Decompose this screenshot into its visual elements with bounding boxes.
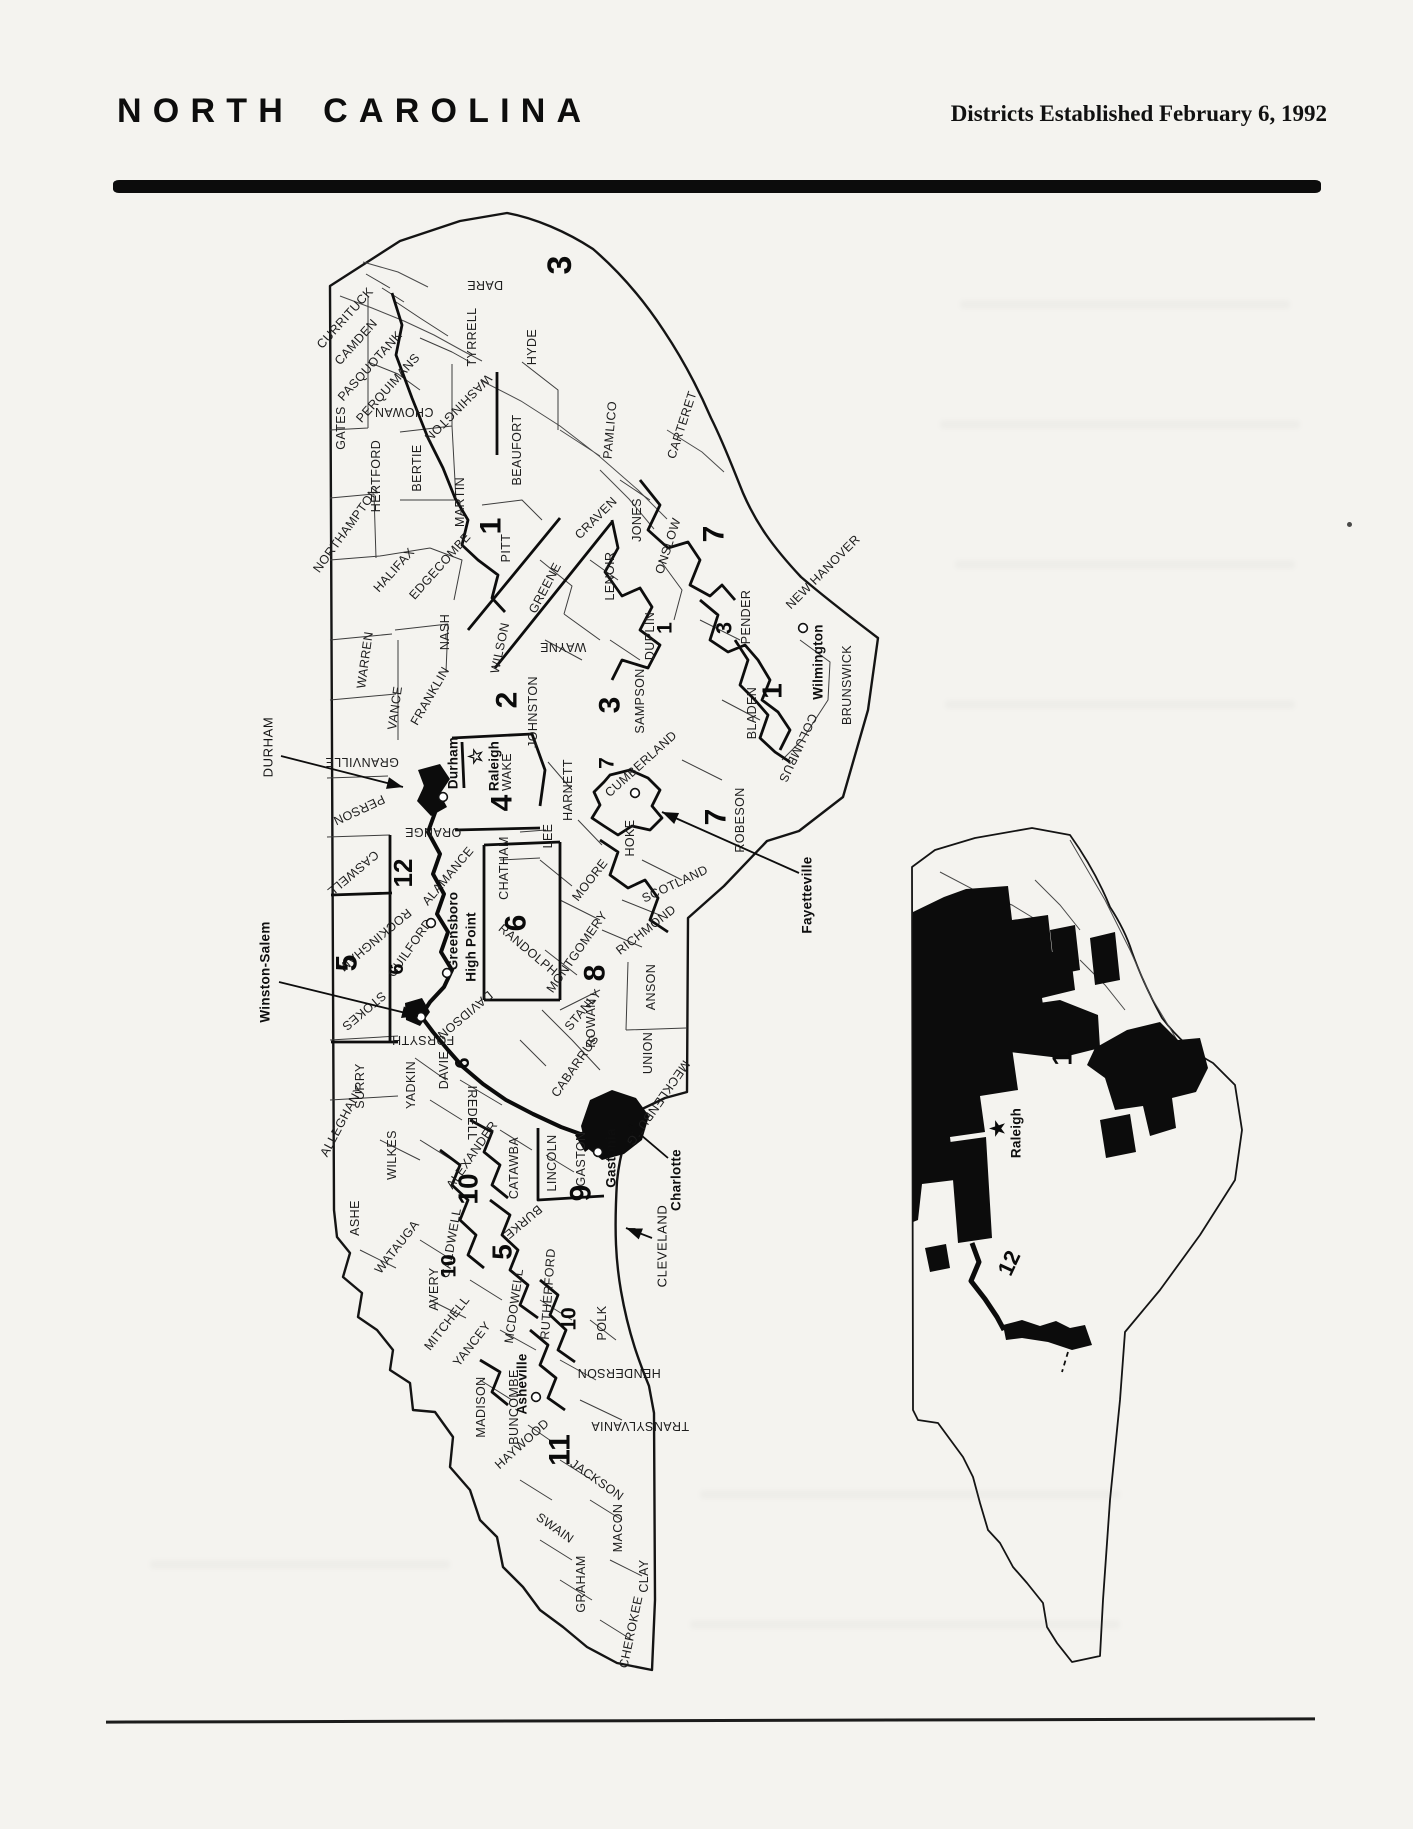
- inset-district-number-label: 1: [1047, 1050, 1078, 1066]
- county-label: CHEROKEE: [617, 1595, 646, 1670]
- callout-label: DURHAM: [261, 717, 276, 778]
- district-number-label: 12: [388, 859, 418, 888]
- county-label: MARTIN: [453, 477, 467, 527]
- county-label: DAVIE: [437, 1051, 451, 1090]
- county-label: GATES: [334, 406, 348, 449]
- county-label: ROBESON: [733, 787, 747, 852]
- county-label: LENOIR: [603, 552, 617, 601]
- county-label: POLK: [595, 1305, 609, 1340]
- county-label: ANSON: [644, 964, 658, 1010]
- county-label: SAMPSON: [633, 668, 647, 733]
- district-number-label: 4: [486, 794, 519, 811]
- county-label: FORSYTH: [392, 1033, 455, 1047]
- callout-label: Charlotte: [669, 1149, 684, 1211]
- county-label: UNION: [641, 1032, 655, 1074]
- county-label: CHATHAM: [497, 836, 511, 900]
- district-number-label: 7: [700, 809, 733, 826]
- county-label: COLUMBUS: [776, 711, 820, 784]
- county-label: MACON: [611, 1504, 625, 1553]
- county-label: GRANVILLE: [325, 755, 399, 769]
- bleed-artifact: [960, 300, 1290, 309]
- callout-label: Winston-Salem: [258, 921, 273, 1022]
- sounds-coastlines: [340, 262, 724, 529]
- inset-map-geometry: [912, 828, 1242, 1662]
- county-label: GASTON: [574, 1132, 588, 1187]
- district-number-label: 5: [487, 1244, 518, 1260]
- district-number-label: 9: [565, 1185, 598, 1202]
- district-number-label: 6: [386, 963, 408, 974]
- inset-district-1-area: [913, 886, 1208, 1272]
- county-label: WAKE: [500, 753, 514, 791]
- county-label: PASQUOTANK: [335, 328, 405, 404]
- district-number-label: 3: [541, 256, 579, 275]
- city-circle-marker: [443, 969, 452, 978]
- district-number-label: 7: [698, 526, 731, 543]
- county-label: LEE: [541, 824, 555, 849]
- city-label: Wilmington: [811, 624, 826, 699]
- city-circle-marker: [439, 793, 448, 802]
- county-label: LINCOLN: [545, 1135, 559, 1192]
- county-label: MADISON: [474, 1376, 488, 1437]
- county-label: STOKES: [339, 989, 389, 1034]
- county-label: NORTHAMPTON: [310, 485, 381, 576]
- county-label: CURRITUCK: [314, 284, 376, 351]
- district-number-label: 10: [558, 1307, 581, 1330]
- county-label: HOKE: [623, 819, 637, 856]
- city-label: Raleigh: [487, 741, 502, 791]
- county-label: TRANSYLVANIA: [591, 1419, 689, 1433]
- county-label: BRUNSWICK: [840, 645, 854, 725]
- county-label: WATAUGA: [372, 1217, 422, 1276]
- county-label: RICHMOND: [613, 902, 678, 957]
- county-label: BEAUFORT: [510, 414, 524, 485]
- county-label: VANCE: [385, 685, 405, 731]
- city-label: High Point: [464, 912, 479, 982]
- county-label: PENDER: [739, 590, 753, 645]
- county-label: CLAY: [637, 1559, 651, 1593]
- callout-arrow-head-icon: [626, 1228, 643, 1239]
- district-number-label: 6: [452, 1057, 474, 1068]
- inset-city-star-icon: ★: [987, 1116, 1010, 1141]
- county-label: ASHE: [348, 1200, 362, 1236]
- bleed-artifact: [955, 560, 1295, 569]
- inset-district-12-blobs: [1003, 1320, 1092, 1350]
- district-number-label: 8: [579, 965, 612, 982]
- county-label: NASH: [438, 614, 452, 650]
- callout-label: Fayetteville: [800, 856, 815, 933]
- county-label: BERTIE: [410, 444, 424, 491]
- district-number-label: 1: [654, 622, 677, 634]
- county-label: SCOTLAND: [640, 863, 711, 906]
- county-label: WILKES: [385, 1130, 399, 1180]
- county-label: ALLEGHANY: [317, 1083, 366, 1159]
- city-label: Durham: [446, 737, 461, 789]
- district-number-label: 3: [712, 622, 737, 634]
- county-label: CHOWAN: [375, 405, 434, 419]
- county-label: TYRRELL: [465, 307, 479, 366]
- district-number-label: 1: [475, 518, 508, 535]
- county-label: EDGECOMBE: [406, 530, 473, 602]
- city-star-icon: ☆: [465, 744, 488, 769]
- county-label: JONES: [630, 498, 644, 542]
- county-label: YANCEY: [450, 1319, 494, 1369]
- county-label: WILSON: [488, 621, 512, 674]
- county-label: WARREN: [354, 631, 376, 690]
- bleed-artifact: [690, 1620, 1120, 1629]
- city-label: Gastonia: [604, 1128, 619, 1188]
- county-label: YADKIN: [404, 1061, 418, 1109]
- county-label: ROWAN: [584, 998, 598, 1047]
- bleed-artifact: [945, 700, 1295, 709]
- bleed-artifact: [940, 420, 1300, 429]
- callout-label: CLEVELAND: [655, 1205, 670, 1288]
- inset-district-number-label: 12: [992, 1247, 1025, 1280]
- city-label: Asheville: [515, 1353, 530, 1414]
- city-circle-marker: [799, 624, 808, 633]
- county-label: WAYNE: [540, 640, 586, 654]
- county-label: MONTGOMERY: [544, 908, 611, 995]
- county-label: IREDELL: [465, 1086, 479, 1141]
- district-number-label: 3: [594, 697, 627, 714]
- district-number-label: 1: [757, 683, 788, 699]
- district-number-label: 10: [438, 1254, 461, 1277]
- county-label: CARTERET: [664, 389, 699, 460]
- city-circle-marker: [594, 1148, 603, 1157]
- county-label: DUPLIN: [643, 612, 657, 660]
- district-number-label: 2: [491, 692, 524, 709]
- county-label: PITT: [499, 534, 513, 563]
- county-label: PERSON: [331, 792, 387, 828]
- city-circle-marker: [532, 1393, 541, 1402]
- county-label: MOORE: [569, 856, 610, 903]
- district-number-label: 10: [453, 1173, 484, 1204]
- county-label: FRANKLIN: [408, 664, 453, 727]
- district-number-label: 6: [500, 915, 533, 932]
- county-label: ORANGE: [405, 825, 462, 839]
- county-label: CATAWBA: [507, 1137, 521, 1200]
- county-label: DARE: [467, 278, 503, 292]
- county-label: GRAHAM: [574, 1555, 588, 1612]
- callout-arrow-head-icon: [662, 812, 679, 824]
- nc-districts-map: CURRITUCKCAMDENPASQUOTANKPERQUIMANSCHOWA…: [0, 0, 1413, 1829]
- city-label: Greensboro: [446, 892, 461, 971]
- city-circle-marker: [631, 789, 640, 798]
- scanned-atlas-page: NORTH CAROLINA Districts Established Feb…: [0, 0, 1413, 1829]
- district-number-label: 7: [596, 757, 619, 769]
- county-label: PAMLICO: [600, 400, 619, 459]
- callout-arrow-head-icon: [386, 777, 403, 789]
- county-label: HENDERSON: [577, 1366, 660, 1380]
- ink-speck: [1347, 522, 1352, 527]
- bleed-artifact: [150, 1560, 450, 1569]
- inset-city-label: Raleigh: [1009, 1108, 1024, 1158]
- city-circle-marker: [417, 1013, 426, 1022]
- bleed-artifact: [700, 1490, 1120, 1499]
- county-label: HARNETT: [561, 759, 575, 821]
- county-label: HYDE: [525, 329, 539, 365]
- district-number-label: 11: [544, 1434, 577, 1466]
- district-number-label: 5: [331, 955, 364, 972]
- county-label: CRAVEN: [572, 494, 620, 542]
- county-label: JOHNSTON: [526, 676, 540, 748]
- inset-district-12-tail: [1062, 1352, 1068, 1372]
- city-circle-marker: [427, 919, 436, 928]
- callout-arrow-line: [279, 982, 418, 1016]
